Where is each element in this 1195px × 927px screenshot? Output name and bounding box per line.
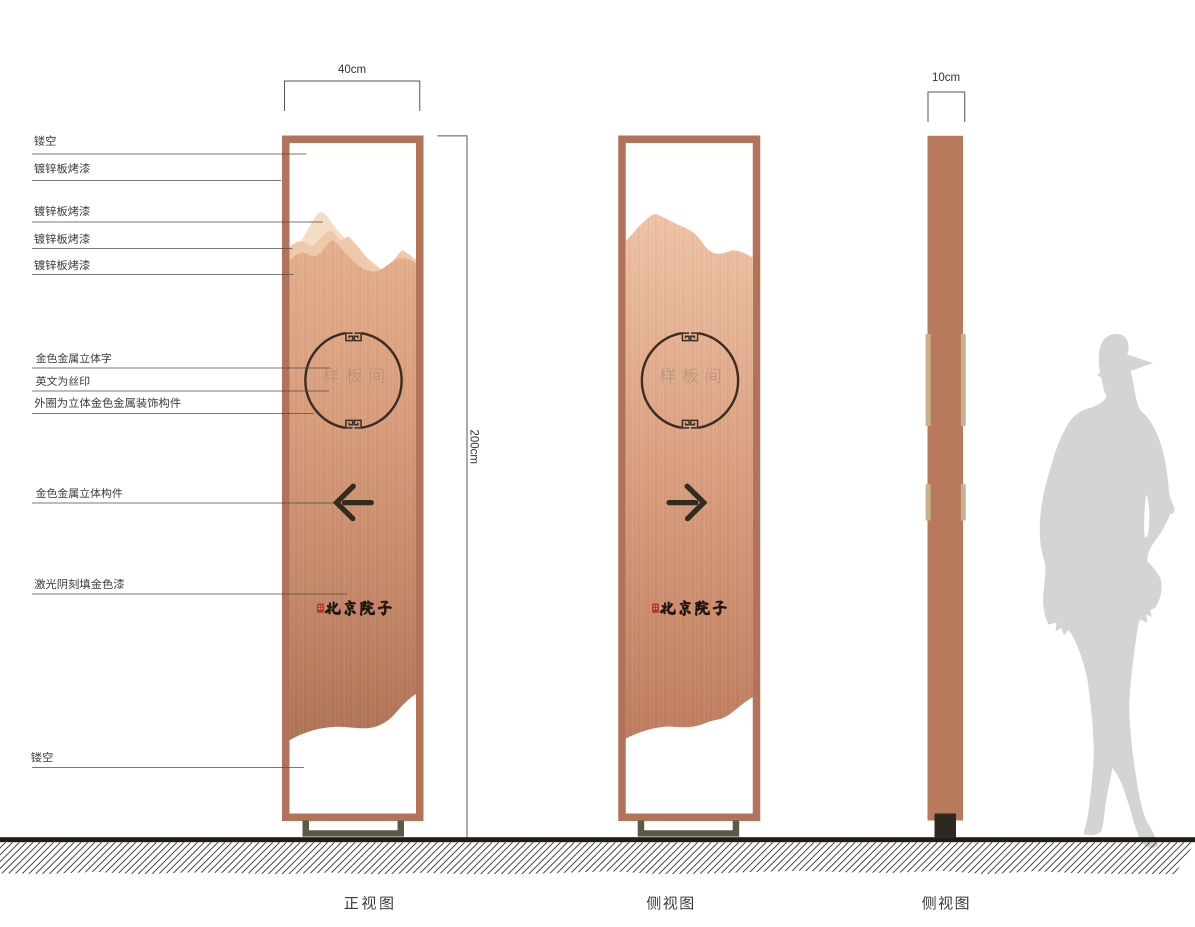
svg-text:10cm: 10cm [932,72,960,84]
svg-text:200cm: 200cm [468,430,480,465]
svg-text:40cm: 40cm [338,64,366,76]
